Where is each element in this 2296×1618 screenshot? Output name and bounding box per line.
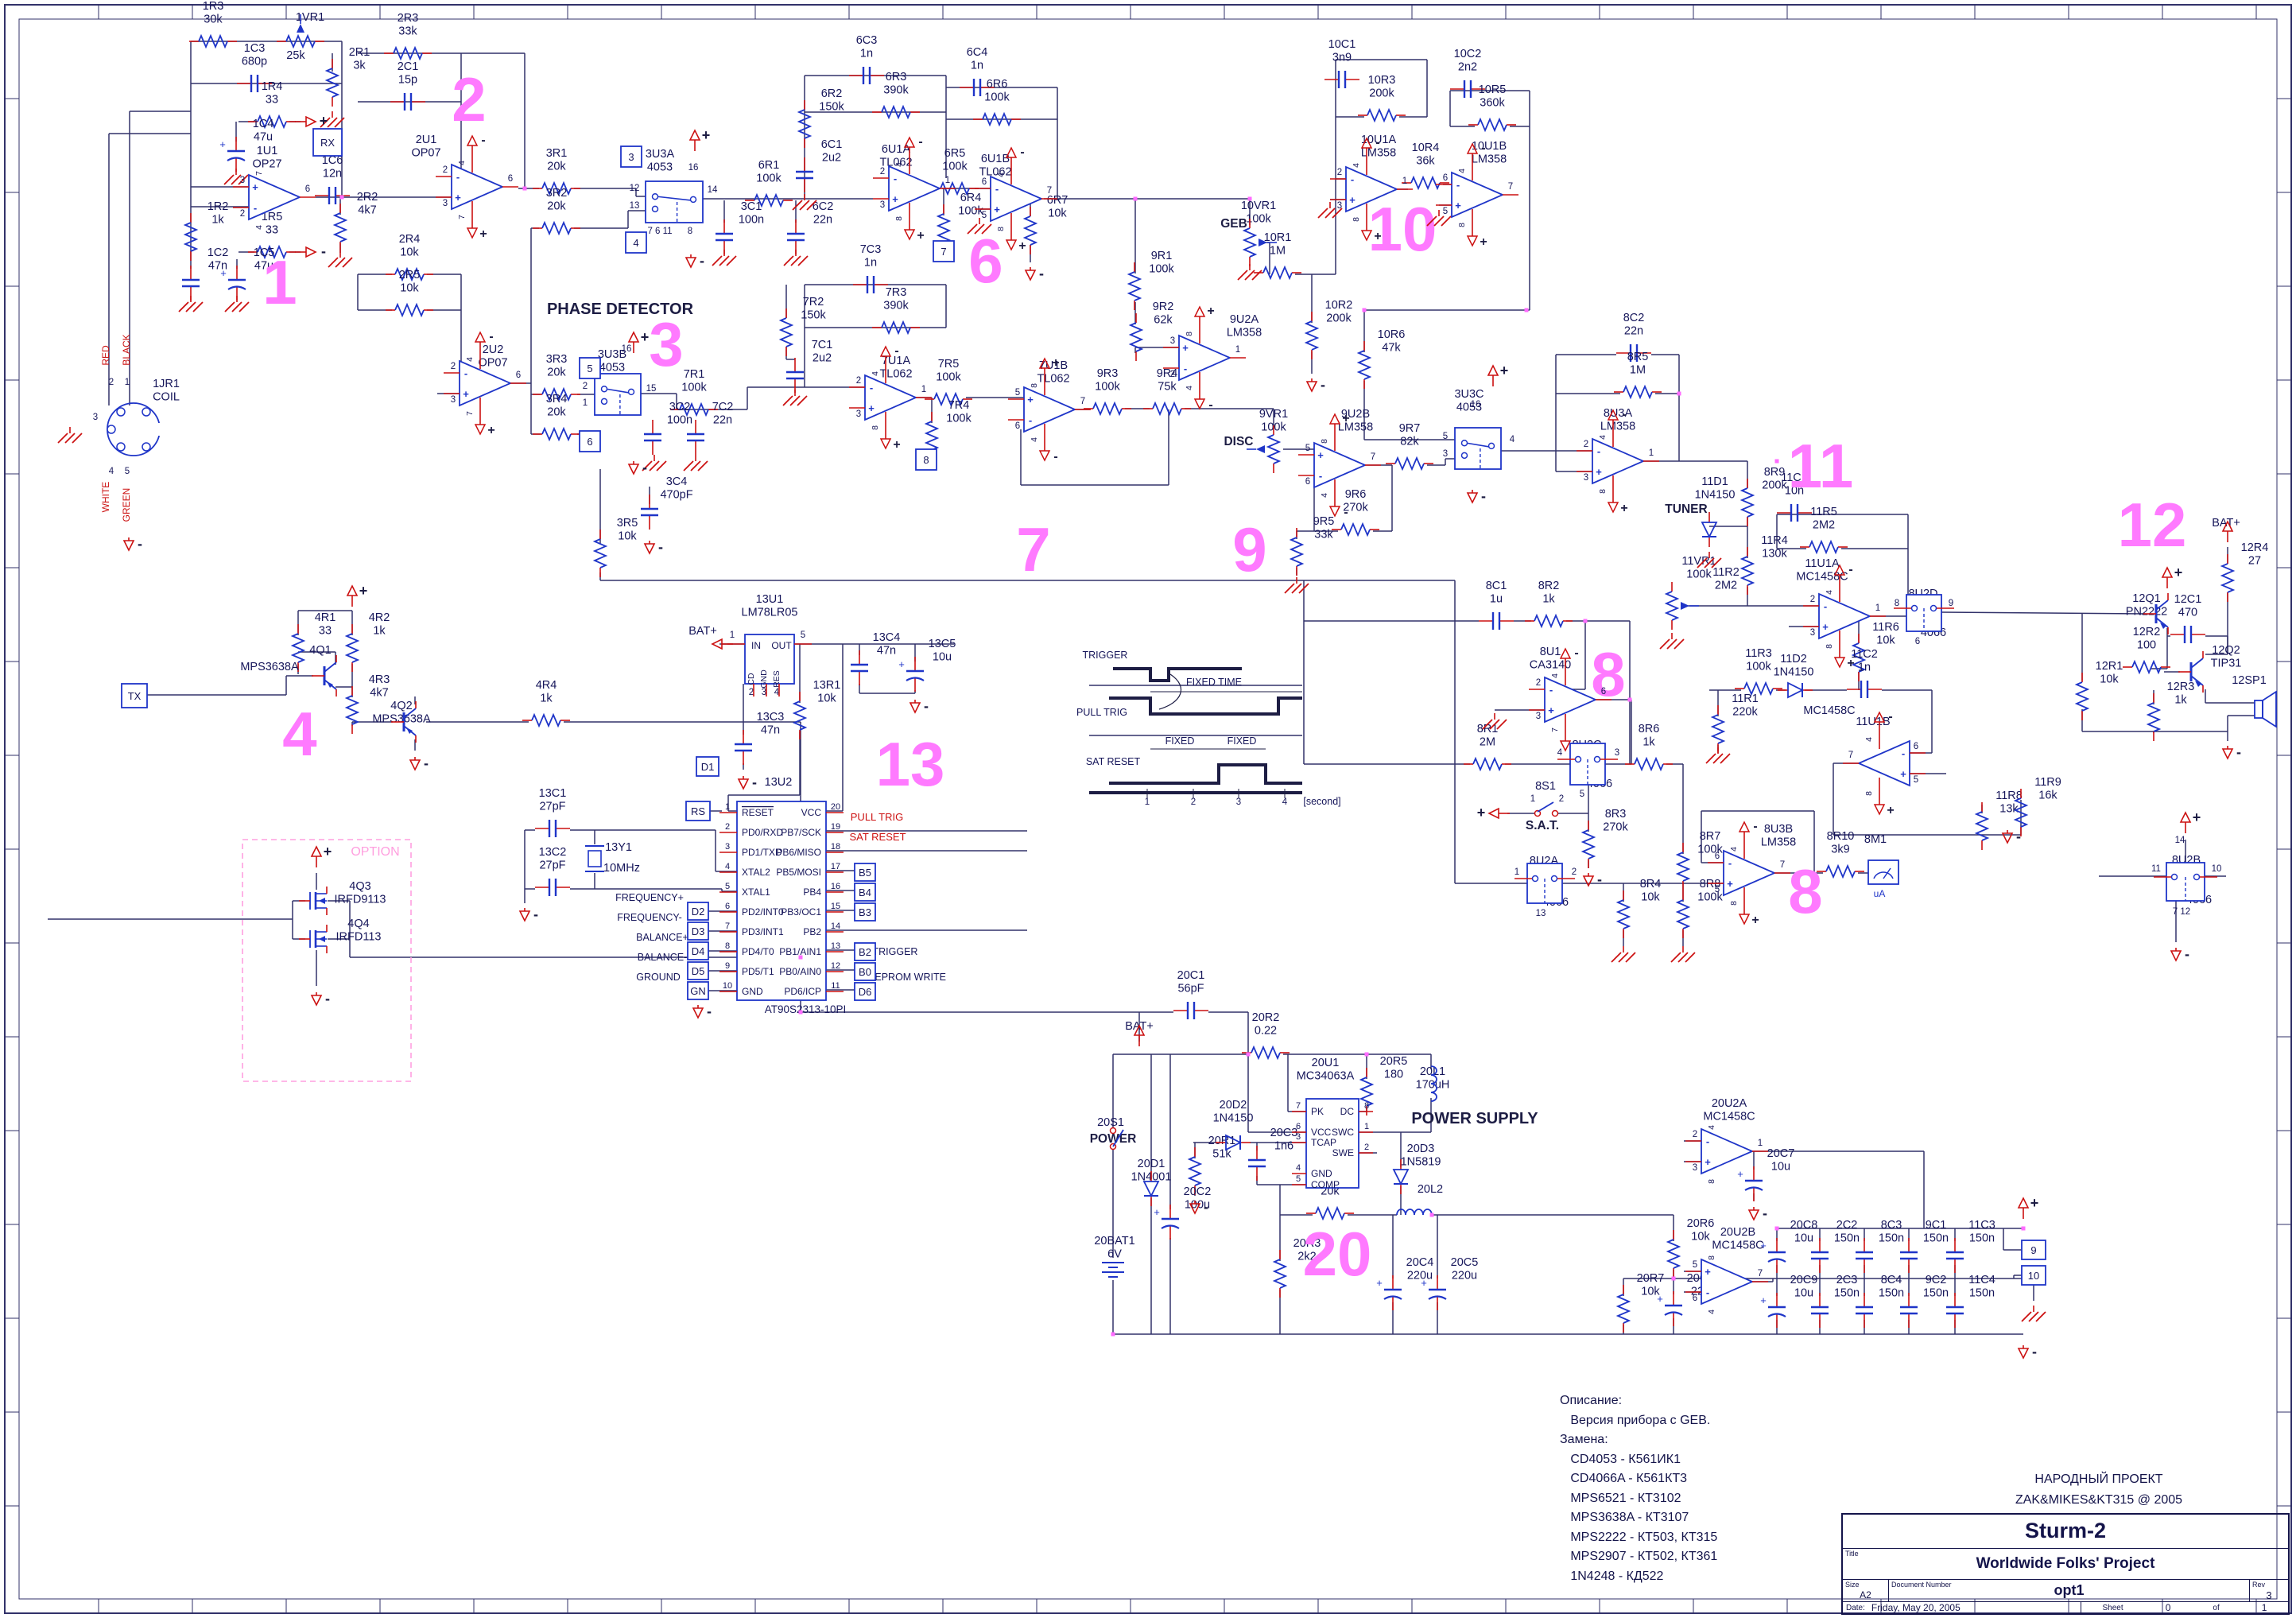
component-label: 4R41k	[536, 679, 557, 705]
opamp-input-sign: +	[1548, 704, 1554, 716]
pin-number: 15	[831, 902, 840, 911]
pin-number: 5	[1914, 775, 1918, 785]
pin-number: 2	[880, 167, 885, 177]
pin-number: 4	[996, 173, 1006, 177]
component-label: 3R510k	[617, 517, 638, 543]
component-label: FIXED TIME	[1186, 677, 1242, 688]
resistor	[1668, 1240, 1679, 1268]
port-label: B5	[859, 867, 871, 879]
component-label: 10R2200k	[1325, 299, 1353, 325]
port-label: B0	[859, 966, 871, 978]
opamp-input-sign: -	[894, 173, 897, 184]
component-label: 8R21k	[1538, 580, 1560, 606]
chip-pin-name: XTAL2	[742, 867, 770, 878]
switch-contact	[1533, 876, 1538, 882]
power-arrow	[306, 247, 316, 257]
wire	[1941, 612, 2145, 614]
note-line: CD4053 - К561ИК1	[1560, 1450, 1717, 1470]
resistor	[199, 36, 227, 47]
diode	[1394, 1170, 1408, 1184]
opamp-input-sign: +	[252, 181, 258, 193]
power-arrow	[2162, 568, 2172, 577]
title-rev-cell: Rev 3	[2250, 1580, 2288, 1601]
component-label: 8C11u	[1486, 580, 1507, 606]
component-label: 4	[1557, 748, 1563, 758]
junction-dot	[1628, 698, 1632, 702]
component-label: 1C447u	[253, 118, 274, 144]
component-label: 15	[646, 384, 657, 394]
component-label: 10R5360k	[1479, 83, 1507, 110]
component-label: 20C156pF	[1177, 969, 1205, 995]
pin-number: 8	[1864, 791, 1874, 796]
port-label: D3	[692, 925, 705, 937]
resistor	[1618, 1294, 1629, 1323]
doc-label: Document Number	[1891, 1581, 1952, 1589]
power-arrow	[1875, 805, 1884, 814]
power-arrow	[690, 130, 700, 140]
resistor	[1411, 177, 1440, 188]
mosfet-arrow	[319, 898, 325, 904]
component-label: 7R3390k	[883, 286, 909, 312]
component-label: 10R3200k	[1368, 74, 1396, 100]
chip-pin-name: PB2	[803, 926, 821, 937]
component-label: 12R110k	[2096, 660, 2123, 686]
sheet-cell: Sheet 0 of 1	[2081, 1602, 2288, 1613]
resistor	[1677, 900, 1689, 929]
power-arrow	[2019, 1348, 2028, 1358]
pin-number: 8	[1030, 383, 1039, 388]
chip-pin-name: PD4/T0	[742, 946, 774, 957]
pin-number: 7	[1047, 186, 1052, 196]
title-subtitle: Worldwide Folks' Project	[1976, 1555, 2155, 1573]
component-label: S.A.T.	[1526, 819, 1559, 832]
rev-label: Rev	[2252, 1581, 2265, 1589]
switch-contact	[691, 196, 696, 202]
pin-number: 1	[1758, 1139, 1763, 1148]
opamp-input-sign: +	[1596, 466, 1602, 478]
junction-dot	[523, 187, 527, 191]
resistor	[542, 223, 571, 234]
power-sign: -	[1481, 488, 1486, 504]
opamp-input-sign: -	[456, 171, 460, 183]
component-label: 7R2150k	[801, 296, 826, 322]
power-sign: -	[2236, 744, 2241, 760]
pin-number: 5	[1715, 885, 1720, 894]
component-label: 11R1220k	[1732, 693, 1759, 719]
rail-sign: -	[1848, 563, 1852, 576]
power-arrow	[629, 464, 638, 474]
component-label: 6R3390k	[883, 71, 909, 97]
component-label: 8R410k	[1640, 878, 1662, 904]
chip-pin-name: VCC	[801, 807, 822, 818]
speaker	[2255, 700, 2263, 718]
component-label: 13Y1	[605, 841, 632, 854]
resistor	[542, 429, 571, 440]
resistor	[595, 539, 606, 568]
chip-pin-name: PB3/OC1	[781, 906, 821, 918]
component-label: 11R3100k	[1745, 647, 1772, 673]
resistor	[1809, 541, 1838, 553]
power-sign: +	[1477, 805, 1486, 821]
switch-contact	[2172, 875, 2178, 880]
component-label: 1C612n	[322, 154, 343, 180]
component-label: 13	[1536, 909, 1546, 918]
component-label: 4	[1510, 435, 1515, 444]
component-label: 1R433	[262, 80, 283, 107]
pin-number: 2	[1693, 1130, 1697, 1139]
component-label: MC1458C	[1803, 704, 1855, 717]
pin-number: 1	[725, 802, 730, 812]
resistor	[1291, 537, 1302, 566]
power-sign: -	[1204, 1199, 1208, 1215]
component-label: 11C4150n	[1968, 1274, 1995, 1300]
component-label: 3R420k	[546, 393, 568, 419]
project-credit: НАРОДНЫЙ ПРОЕКТ ZAK&MIKES&KT315 @ 2005	[1900, 1469, 2296, 1511]
power-arrow	[693, 1008, 703, 1018]
component-label: 20R20.22	[1252, 1011, 1280, 1038]
pin-number: 4	[871, 371, 880, 376]
pin-number: 3	[443, 199, 448, 208]
pin-number: 6	[1693, 1294, 1697, 1303]
resistor	[327, 68, 338, 97]
component-label: 9C2150n	[1923, 1274, 1949, 1300]
power-sign: -	[1321, 377, 1325, 393]
pin-number: 6	[1296, 1122, 1301, 1131]
component-label: FIXED	[1228, 735, 1257, 747]
pin-number: 6	[982, 177, 987, 187]
pin-number: 4	[1550, 673, 1560, 678]
junction-dot	[340, 196, 344, 200]
port-label: 3	[628, 151, 634, 163]
component-label: 20C31n6	[1270, 1127, 1298, 1153]
pin-number: 3	[725, 842, 730, 852]
opamp-input-sign: -	[1597, 445, 1600, 457]
pin-number: 20	[831, 802, 840, 812]
component-label: 9R1100k	[1149, 250, 1174, 276]
component-label: 7 12	[2173, 907, 2190, 917]
port-label: TX	[128, 690, 142, 702]
section-number: 8	[1788, 856, 1822, 926]
pot-wiper	[297, 24, 304, 33]
pin-number: 1	[1649, 448, 1654, 458]
pin-number: 5	[1296, 1174, 1301, 1184]
component-label: GEB	[1220, 217, 1247, 231]
component-label: 11VR1100k	[1681, 555, 1716, 581]
diode	[1702, 522, 1716, 537]
component-label: 7R4100k	[946, 399, 972, 425]
sheet-total: 1	[2262, 1602, 2267, 1613]
component-label: 1U1OP27	[252, 145, 281, 171]
component-label: 1R330k	[203, 0, 224, 26]
junction-dot	[799, 1011, 803, 1015]
power-arrow	[1608, 502, 1618, 512]
resistor	[1359, 351, 1370, 379]
resistor	[1129, 272, 1140, 301]
resistor	[1189, 1157, 1200, 1185]
chip-pin-name: IN	[751, 640, 761, 651]
component-label: 10MHz	[603, 862, 640, 875]
power-sign: -	[2032, 1344, 2037, 1360]
power-arrow	[520, 911, 529, 921]
power-arrow	[1468, 236, 1477, 246]
power-arrow	[2223, 749, 2232, 759]
power-arrow	[410, 760, 420, 770]
component-label: 20C910u	[1790, 1274, 1818, 1300]
size-value: A2	[1860, 1589, 1871, 1601]
component-label: 6	[1915, 637, 1920, 646]
opamp-input-sign: -	[995, 183, 999, 195]
component-label: 2C2150n	[1834, 1219, 1860, 1245]
switch-contact	[1912, 606, 1918, 611]
port-label: D6	[859, 986, 872, 998]
component-label: 1R21k	[207, 200, 229, 227]
pin-number: 6	[508, 174, 513, 184]
component-label: 6R5100k	[942, 147, 968, 173]
component-label: TRIGGER	[1083, 650, 1128, 661]
component-label: 1	[1530, 794, 1535, 804]
component-label: POWER SUPPLY	[1411, 1110, 1538, 1127]
pin-number: 8	[1364, 1101, 1369, 1111]
pin-number: 3	[856, 409, 861, 419]
power-arrow	[686, 258, 696, 267]
component-label: 12	[630, 184, 640, 193]
opamp-input-sign: +	[1317, 449, 1324, 461]
pin-number: 9	[725, 961, 730, 971]
pin-number: 3	[1536, 712, 1541, 721]
polarity-plus: +	[1760, 1240, 1767, 1251]
component-label: 4R34k7	[369, 673, 390, 700]
rail-sign: +	[1480, 235, 1487, 249]
pin-number: 7	[725, 922, 730, 931]
switch-lever	[1538, 802, 1553, 812]
power-arrow	[739, 779, 748, 789]
pin-number: 1	[921, 385, 926, 394]
component-label: 4Q4IRFD113	[336, 918, 382, 944]
power-sign: -	[700, 253, 704, 269]
page-border-inner	[19, 19, 2277, 1599]
pin-number: 4	[1707, 1125, 1716, 1130]
pin-number: 7	[1508, 182, 1513, 192]
resistor	[1263, 267, 1292, 278]
port-label: RX	[320, 137, 335, 149]
component-label: 2	[1572, 867, 1577, 877]
resistor	[1712, 715, 1724, 743]
connector-pin	[107, 425, 115, 433]
opamp-input-sign: +	[1900, 768, 1906, 780]
rail-sign: -	[1574, 646, 1578, 660]
chip-pin-name: COMP	[1311, 1179, 1340, 1190]
component-label: 13C227pF	[539, 846, 567, 872]
chip-pin-name: GND	[759, 669, 769, 689]
pot-wiper	[1681, 602, 1689, 610]
pin-number: 4	[1864, 737, 1874, 742]
junction-dot	[1430, 1213, 1434, 1217]
chip-pin-name: PD2/INT0	[742, 906, 784, 918]
component-label: GREEN	[121, 488, 132, 522]
power-arrow	[312, 995, 321, 1005]
pin-number: 2	[451, 362, 456, 371]
component-label: 1JR1COIL	[153, 378, 180, 404]
component-label: 1	[125, 378, 130, 387]
component-label: 10	[2212, 864, 2222, 874]
pin-number: 4	[1598, 435, 1608, 440]
power-sign: -	[707, 1003, 712, 1019]
component-label: 3	[1236, 797, 1241, 807]
power-arrow	[2181, 813, 2190, 822]
pin-number: 8	[1825, 644, 1834, 649]
pin-number: 5	[1693, 1260, 1697, 1270]
component-label: BAT+	[688, 625, 717, 638]
component-label: 9	[1949, 599, 1953, 608]
resistor	[1635, 759, 1663, 770]
opamp-input-sign: -	[1728, 857, 1732, 869]
rail-sign: +	[1342, 412, 1349, 425]
component-label: BALANCE-	[638, 952, 688, 963]
rail-sign: -	[1481, 142, 1485, 155]
pin-number: 8	[1320, 439, 1329, 444]
power-sign: -	[2185, 946, 2189, 962]
component-label: 7R1100k	[681, 368, 707, 394]
component-label: 8C3150n	[1879, 1219, 1904, 1245]
component-label: 11C21n	[1851, 648, 1878, 674]
component-label: 11D11N4150	[1695, 475, 1736, 502]
component-label: 8R103k9	[1827, 830, 1855, 856]
component-label: OPTION	[351, 845, 399, 859]
resistor	[1341, 524, 1370, 535]
resistor	[1153, 403, 1181, 414]
note-line: MPS3638A - КТ3107	[1560, 1508, 1717, 1528]
power-sign: -	[658, 539, 663, 555]
component-label: 20U2AMC1458C	[1703, 1097, 1755, 1123]
opamp-input-sign: +	[994, 204, 1000, 215]
pin-number: 8	[1185, 332, 1194, 336]
opamp-input-sign: +	[1455, 200, 1461, 211]
resistor	[1976, 812, 1988, 840]
power-sign: -	[752, 774, 757, 790]
junction-dot	[1248, 197, 1252, 201]
timing-waveform	[1109, 698, 1302, 714]
power-sign: -	[1597, 871, 1602, 887]
resistor	[335, 213, 346, 242]
pin-number: 6	[1443, 173, 1448, 183]
pin-number: 5	[982, 211, 987, 220]
component-label: 2U1OP07	[411, 134, 440, 160]
component-label: 11U1AMC1458C	[1796, 557, 1848, 584]
component-label: 5	[125, 467, 130, 476]
junction-dot	[1363, 308, 1367, 312]
component-label: GROUND	[636, 972, 681, 983]
component-label: 11	[2151, 864, 2161, 874]
component-label: 20C4220u	[1406, 1256, 1434, 1282]
chip-pin-name: CD	[747, 673, 756, 685]
component-label: SAT RESET	[1086, 756, 1141, 767]
switch-contact	[1931, 606, 1937, 611]
component-label: 16	[622, 344, 632, 354]
component-label: 3	[1443, 449, 1448, 459]
component-label: 6R6100k	[984, 78, 1010, 104]
doc-value: opt1	[2054, 1582, 2085, 1599]
chip-pin-name: SWE	[1332, 1147, 1354, 1158]
chip-part-number: AT90S2313-10PI	[765, 1003, 847, 1015]
note-line: MPS2222 - КТ503, КТ315	[1560, 1528, 1717, 1548]
resistor	[1473, 759, 1502, 770]
power-arrow	[1488, 366, 1498, 375]
port-label: 7	[941, 246, 946, 258]
component-label: 20C810u	[1790, 1219, 1818, 1245]
opamp-input-sign: +	[868, 402, 875, 414]
port-label: 9	[2030, 1244, 2036, 1256]
switch-contact	[1552, 876, 1557, 882]
pin-number: 2	[443, 165, 448, 175]
component-label: SAT RESET	[849, 831, 906, 843]
component-label: 6C222n	[813, 200, 834, 227]
resistor	[1025, 216, 1036, 245]
rail-sign: +	[1052, 356, 1059, 370]
mosfet-arrow	[319, 936, 325, 942]
component-label: 13U2	[765, 776, 793, 789]
component-label: 4R133	[315, 611, 336, 638]
component-label: 20L1170uH	[1416, 1065, 1450, 1092]
pin-number: 8	[1707, 1179, 1716, 1184]
pin-number: 10	[723, 981, 732, 991]
component-label: 2R510k	[399, 269, 421, 295]
polarity-plus: +	[220, 267, 227, 279]
power-sign: -	[138, 536, 142, 552]
component-label: 3R120k	[546, 147, 568, 173]
pin-number: 7	[1550, 728, 1560, 732]
component-label: 1C3680p	[242, 42, 267, 68]
schematic-canvas: 1R330k1VR125k1C3680p2R333k2R13k2C115p1R4…	[0, 0, 2296, 1618]
pin-number: 2	[1337, 168, 1342, 177]
pin-number: 3	[1337, 201, 1342, 211]
switch-contact	[1462, 440, 1468, 446]
chip-pin-name: PK	[1311, 1106, 1324, 1117]
component-label: 6R2150k	[819, 87, 844, 114]
opamp-input-sign: -	[870, 382, 873, 394]
port-label: GN	[690, 985, 706, 997]
component-label: 8S1	[1535, 780, 1556, 793]
component-label: WHITE	[100, 482, 111, 513]
pin-number: 8	[1457, 223, 1467, 227]
resistor	[1666, 592, 1677, 620]
opamp-input-sign: +	[455, 192, 461, 204]
power-arrow	[881, 439, 890, 448]
pin-number: 4	[1457, 169, 1467, 173]
component-label: 8R3270k	[1603, 808, 1628, 834]
polarity-plus: +	[1421, 1277, 1427, 1289]
pin-number: 14	[831, 922, 840, 931]
resistor	[1742, 557, 1753, 585]
pin-number: 1	[1364, 1122, 1369, 1131]
pin-number: 3	[451, 395, 456, 405]
pin-number: 18	[831, 842, 840, 852]
component-label: 3R320k	[546, 353, 568, 379]
switch-pole	[1111, 1128, 1116, 1134]
power-arrow	[1749, 1210, 1759, 1220]
resistor	[1742, 488, 1753, 517]
component-label: 8M1	[1864, 833, 1887, 846]
opamp-input-sign: +	[1182, 342, 1189, 354]
port-label: 10	[2028, 1270, 2039, 1282]
component-label: 16	[1471, 400, 1481, 409]
component-label: 20L2	[1418, 1183, 1443, 1196]
component-label: 9U2ALM358	[1227, 313, 1262, 340]
chip-pin-name: PD5/T1	[742, 966, 774, 977]
polarity-plus: +	[1376, 1277, 1383, 1289]
port-label: B3	[859, 906, 871, 918]
component-label: 13U1LM78LR05	[742, 593, 798, 619]
component-label: 7C222n	[712, 401, 734, 427]
